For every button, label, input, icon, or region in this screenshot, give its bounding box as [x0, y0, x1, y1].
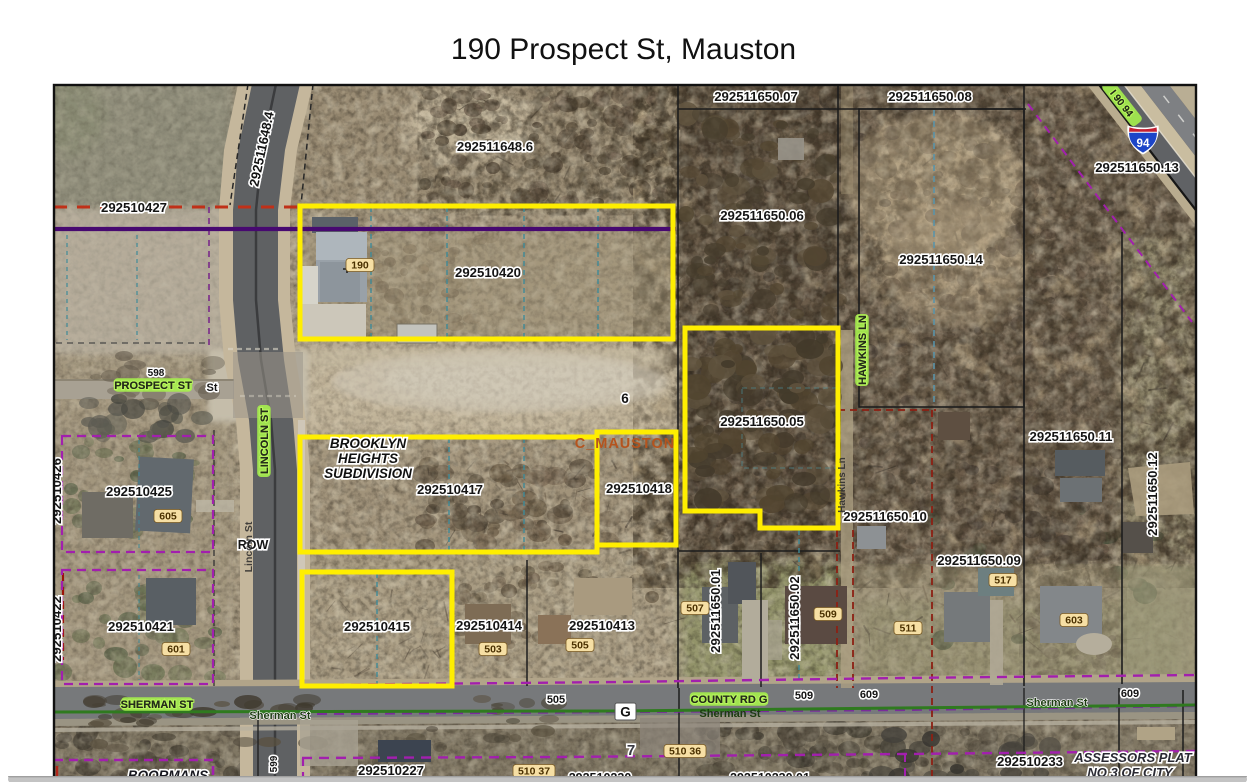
svg-text:509: 509: [819, 609, 837, 621]
svg-text:603: 603: [1065, 615, 1083, 627]
svg-text:609: 609: [1121, 688, 1139, 700]
svg-text:599: 599: [269, 755, 280, 772]
svg-text:292511650.02: 292511650.02: [787, 576, 802, 660]
svg-text:292510417: 292510417: [417, 482, 483, 497]
svg-text:292510420: 292510420: [455, 265, 521, 280]
svg-text:509: 509: [795, 690, 813, 702]
svg-text:517: 517: [994, 575, 1012, 587]
svg-text:601: 601: [167, 644, 185, 656]
svg-text:HAWKINS LN: HAWKINS LN: [857, 315, 869, 385]
svg-text:292510421: 292510421: [108, 619, 174, 634]
svg-text:507: 507: [686, 603, 704, 615]
svg-text:605: 605: [159, 511, 177, 523]
svg-text:292510426: 292510426: [49, 458, 64, 524]
svg-text:510 37: 510 37: [518, 766, 550, 778]
svg-text:292510418: 292510418: [606, 481, 672, 496]
svg-text:292511650.06: 292511650.06: [720, 208, 804, 223]
svg-text:292511650.05: 292511650.05: [720, 414, 804, 429]
svg-text:292510425: 292510425: [106, 484, 172, 499]
svg-text:292511648.6: 292511648.6: [457, 139, 533, 154]
svg-text:LINCOLN ST: LINCOLN ST: [259, 408, 271, 474]
svg-text:292510414: 292510414: [456, 618, 523, 633]
svg-text:COUNTY RD G: COUNTY RD G: [691, 694, 768, 706]
svg-text:505: 505: [571, 640, 589, 652]
svg-text:G: G: [620, 705, 631, 720]
svg-text:St: St: [207, 382, 218, 394]
svg-text:292510422: 292510422: [49, 596, 64, 662]
svg-text:510 36: 510 36: [669, 746, 701, 758]
svg-text:292510415: 292510415: [344, 619, 410, 634]
svg-text:Sherman St: Sherman St: [1026, 697, 1087, 709]
svg-text:292510427: 292510427: [101, 200, 167, 215]
svg-text:7: 7: [627, 742, 635, 759]
svg-text:609: 609: [860, 689, 878, 701]
svg-text:Hawkins Ln: Hawkins Ln: [837, 457, 848, 513]
svg-text:511: 511: [900, 623, 917, 635]
svg-text:292511650.12: 292511650.12: [1145, 452, 1160, 536]
svg-text:C_MAUSTON: C_MAUSTON: [575, 436, 676, 452]
svg-text:292511650.13: 292511650.13: [1095, 160, 1179, 175]
svg-text:292510233: 292510233: [997, 754, 1063, 769]
svg-text:292511650.11: 292511650.11: [1030, 429, 1113, 444]
svg-text:292511650.01: 292511650.01: [708, 569, 723, 653]
svg-text:292510227: 292510227: [358, 763, 424, 778]
svg-text:6: 6: [621, 391, 629, 406]
svg-text:505: 505: [547, 694, 565, 706]
svg-text:Lincoln St: Lincoln St: [243, 521, 255, 572]
svg-text:Sherman St: Sherman St: [699, 708, 760, 720]
svg-text:292511650.14: 292511650.14: [899, 252, 983, 267]
svg-text:190: 190: [351, 260, 369, 272]
svg-text:94: 94: [1137, 137, 1150, 150]
svg-text:292511650.09: 292511650.09: [937, 553, 1021, 568]
svg-text:598: 598: [148, 368, 165, 379]
svg-text:292511650.07: 292511650.07: [714, 89, 798, 104]
svg-text:503: 503: [484, 644, 502, 656]
svg-text:PROSPECT ST: PROSPECT ST: [114, 380, 192, 392]
svg-text:292511650.10: 292511650.10: [843, 509, 927, 524]
svg-text:292511650.08: 292511650.08: [888, 89, 972, 104]
svg-text:SHERMAN ST: SHERMAN ST: [121, 699, 194, 711]
svg-text:Sherman St: Sherman St: [249, 710, 310, 722]
svg-text:292510413: 292510413: [569, 618, 635, 633]
